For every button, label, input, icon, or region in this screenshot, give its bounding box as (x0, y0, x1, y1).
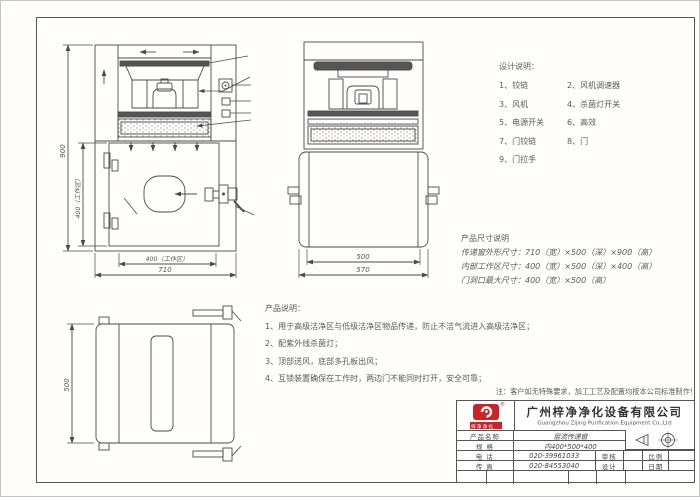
drawing-page: 900 400（工作区） 400（工作区） 710 (0, 0, 700, 497)
hinge-icon (99, 317, 109, 324)
latch-icon (428, 187, 439, 194)
design-note-item: 7、门铰链 (499, 136, 567, 147)
lamp-switch-icon (222, 98, 230, 105)
company-name-cell: 广州梓净净化设备有限公司 Guangzhou Zijing Purificati… (515, 401, 694, 430)
bottom-cell (626, 471, 694, 484)
svg-text:900: 900 (59, 144, 67, 158)
dim-front-height: 900 (59, 45, 93, 251)
hinge-icon (99, 443, 109, 450)
front-view: 900 400（工作区） 400（工作区） 710 (59, 45, 254, 278)
dim-side-inner: 500 (307, 249, 420, 265)
fax-label: 传 真 (457, 461, 514, 470)
design-note-item: 6、高效 (567, 117, 673, 128)
design-note-item: 9、门拉手 (499, 154, 567, 165)
product-note-line: 1、用于高级洁净区与低级洁净区物品传递，防止不洁气流进入高级洁净区； (265, 318, 700, 336)
design-note-item: 2、风机调速器 (567, 80, 673, 91)
design-note-item: 5、电源开关 (499, 117, 567, 128)
fax-value: 020-84553040 (514, 461, 596, 470)
design-note-item: 4、杀菌灯开关 (567, 99, 673, 110)
design-note-item: 1、铰链 (499, 80, 567, 91)
svg-text:500: 500 (63, 378, 71, 392)
logo-banner-text: 梓净净化 (471, 423, 503, 430)
handle-bottom-icon (193, 446, 241, 461)
bottom-cell (514, 471, 570, 484)
size-spec-line: 传递窗外形尺寸：710（宽）×500（深）×900（高） (461, 246, 699, 260)
design-notes-list: 1、铰链 2、风机调速器 3、风机 4、杀菌灯开关 5、电源开关 6、高效 7、… (499, 80, 679, 165)
latch-icon (288, 187, 299, 194)
bottom-cell (487, 471, 514, 484)
product-note-line: 4、互锁装置确保在工作时，两边门不能同时打开，安全可靠； (265, 370, 700, 388)
design-label: 设计 (596, 461, 624, 470)
standard-remark: 注：客户如无特殊要求，加工工艺及配置均按本公司标准制作！ (416, 387, 697, 397)
first-angle-projection-icon (626, 430, 694, 449)
filter-frame-bar (118, 112, 211, 117)
side-chamber (288, 152, 439, 247)
hepa-filter-side (308, 126, 418, 144)
svg-text:400（工作区）: 400（工作区） (74, 176, 82, 219)
design-notes: 设计说明： 1、铰链 2、风机调速器 3、风机 4、杀菌灯开关 5、电源开关 6… (499, 61, 679, 165)
power-switch-icon (222, 110, 230, 117)
spec-label: 规 格 (457, 441, 514, 450)
product-notes: 产品说明： 1、用于高级洁净区与低级洁净区物品传递，防止不洁气流进入高级洁净区；… (265, 300, 700, 388)
title-block-row-bottom (457, 470, 694, 484)
size-spec-line: 门洞口最大尺寸：400（宽）×500（高） (461, 274, 699, 288)
top-view: 500 (63, 306, 241, 461)
svg-text:570: 570 (356, 266, 370, 274)
window-slot-icon (151, 336, 173, 431)
svg-text:710: 710 (158, 266, 172, 274)
control-panel (219, 79, 232, 117)
check-label: 审核 (596, 451, 624, 460)
title-block-header: ® 梓净净化 广州梓净净化设备有限公司 Guangzhou Zijing Pur… (457, 401, 694, 430)
dim-front-work-height: 400（工作区） (74, 143, 107, 246)
projection-symbol-cell (625, 430, 694, 450)
front-door (104, 143, 219, 246)
company-logo: ® 梓净净化 (457, 401, 515, 430)
company-name-cn: 广州梓净净化设备有限公司 (515, 404, 694, 420)
product-name-value: 层流传递窗 (514, 431, 627, 440)
design-notes-title: 设计说明： (499, 61, 679, 72)
size-spec: 产品尺寸说明 传递窗外形尺寸：710（宽）×500（深）×900（高） 内部工作… (461, 232, 699, 288)
dim-front-work-width: 400（工作区） (119, 253, 216, 267)
company-name-en: Guangzhou Zijing Purification Equipment … (522, 420, 687, 426)
door-handle-icon (205, 185, 244, 212)
tel-value: 020-39961033 (514, 451, 596, 460)
title-block: ® 梓净净化 广州梓净净化设备有限公司 Guangzhou Zijing Pur… (456, 400, 695, 483)
size-spec-title: 产品尺寸说明 (461, 232, 699, 246)
side-view: 500 570 (288, 42, 439, 278)
fan-assembly-side-icon (314, 62, 412, 109)
bottom-cell (569, 471, 597, 484)
product-note-line: 3、顶部送风，底部多孔板出风； (265, 353, 700, 371)
scale-label: 比例 (643, 451, 669, 460)
hepa-filter-front (118, 119, 211, 137)
product-notes-title: 产品说明： (265, 300, 700, 318)
spec-value: 内400*500*400 (514, 441, 627, 450)
fan-assembly-icon (120, 61, 209, 108)
design-value-cell (624, 461, 644, 470)
product-name-label: 产品名称 (457, 431, 514, 440)
bottom-cell (597, 471, 626, 484)
title-block-row-fax: 传 真 020-84553040 设计 日期 (457, 460, 694, 470)
design-note-item: 3、风机 (499, 99, 567, 110)
date-label: 日期 (643, 461, 669, 470)
date-value-cell (669, 461, 694, 470)
dim-top-depth: 500 (63, 324, 94, 443)
title-block-row-tel: 电 话 020-39961033 审核 比例 (457, 450, 694, 460)
svg-text:400（工作区）: 400（工作区） (146, 255, 189, 263)
product-note-line: 2、配紫外线杀菌灯； (265, 335, 700, 353)
registered-mark: ® (500, 402, 505, 408)
handle-top-icon (193, 306, 241, 321)
size-spec-line: 内部工作区尺寸：400（宽）×500（深）×400（高） (461, 260, 699, 274)
svg-text:500: 500 (356, 253, 370, 261)
tel-label: 电 话 (457, 451, 514, 460)
scale-value-cell (669, 451, 694, 460)
check-value-cell (624, 451, 644, 460)
design-note-item: 8、门 (567, 136, 673, 147)
bottom-cell (457, 471, 487, 484)
